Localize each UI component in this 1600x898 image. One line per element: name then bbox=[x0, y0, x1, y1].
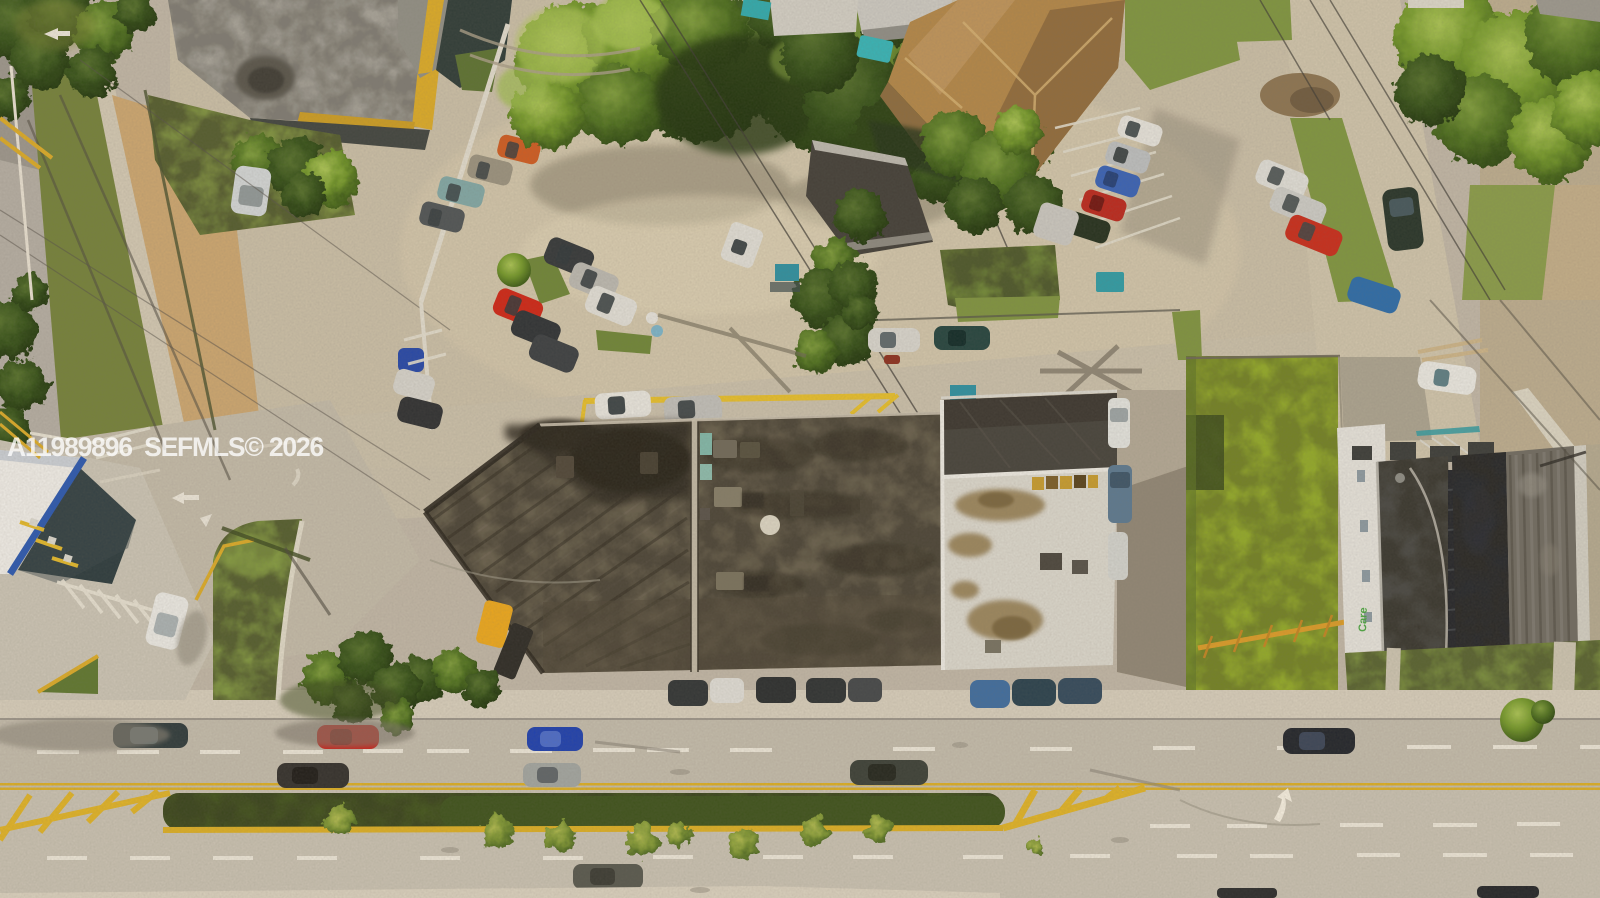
svg-text:A11989896 SEFMLS© 2026: A11989896 SEFMLS© 2026 bbox=[7, 432, 323, 462]
